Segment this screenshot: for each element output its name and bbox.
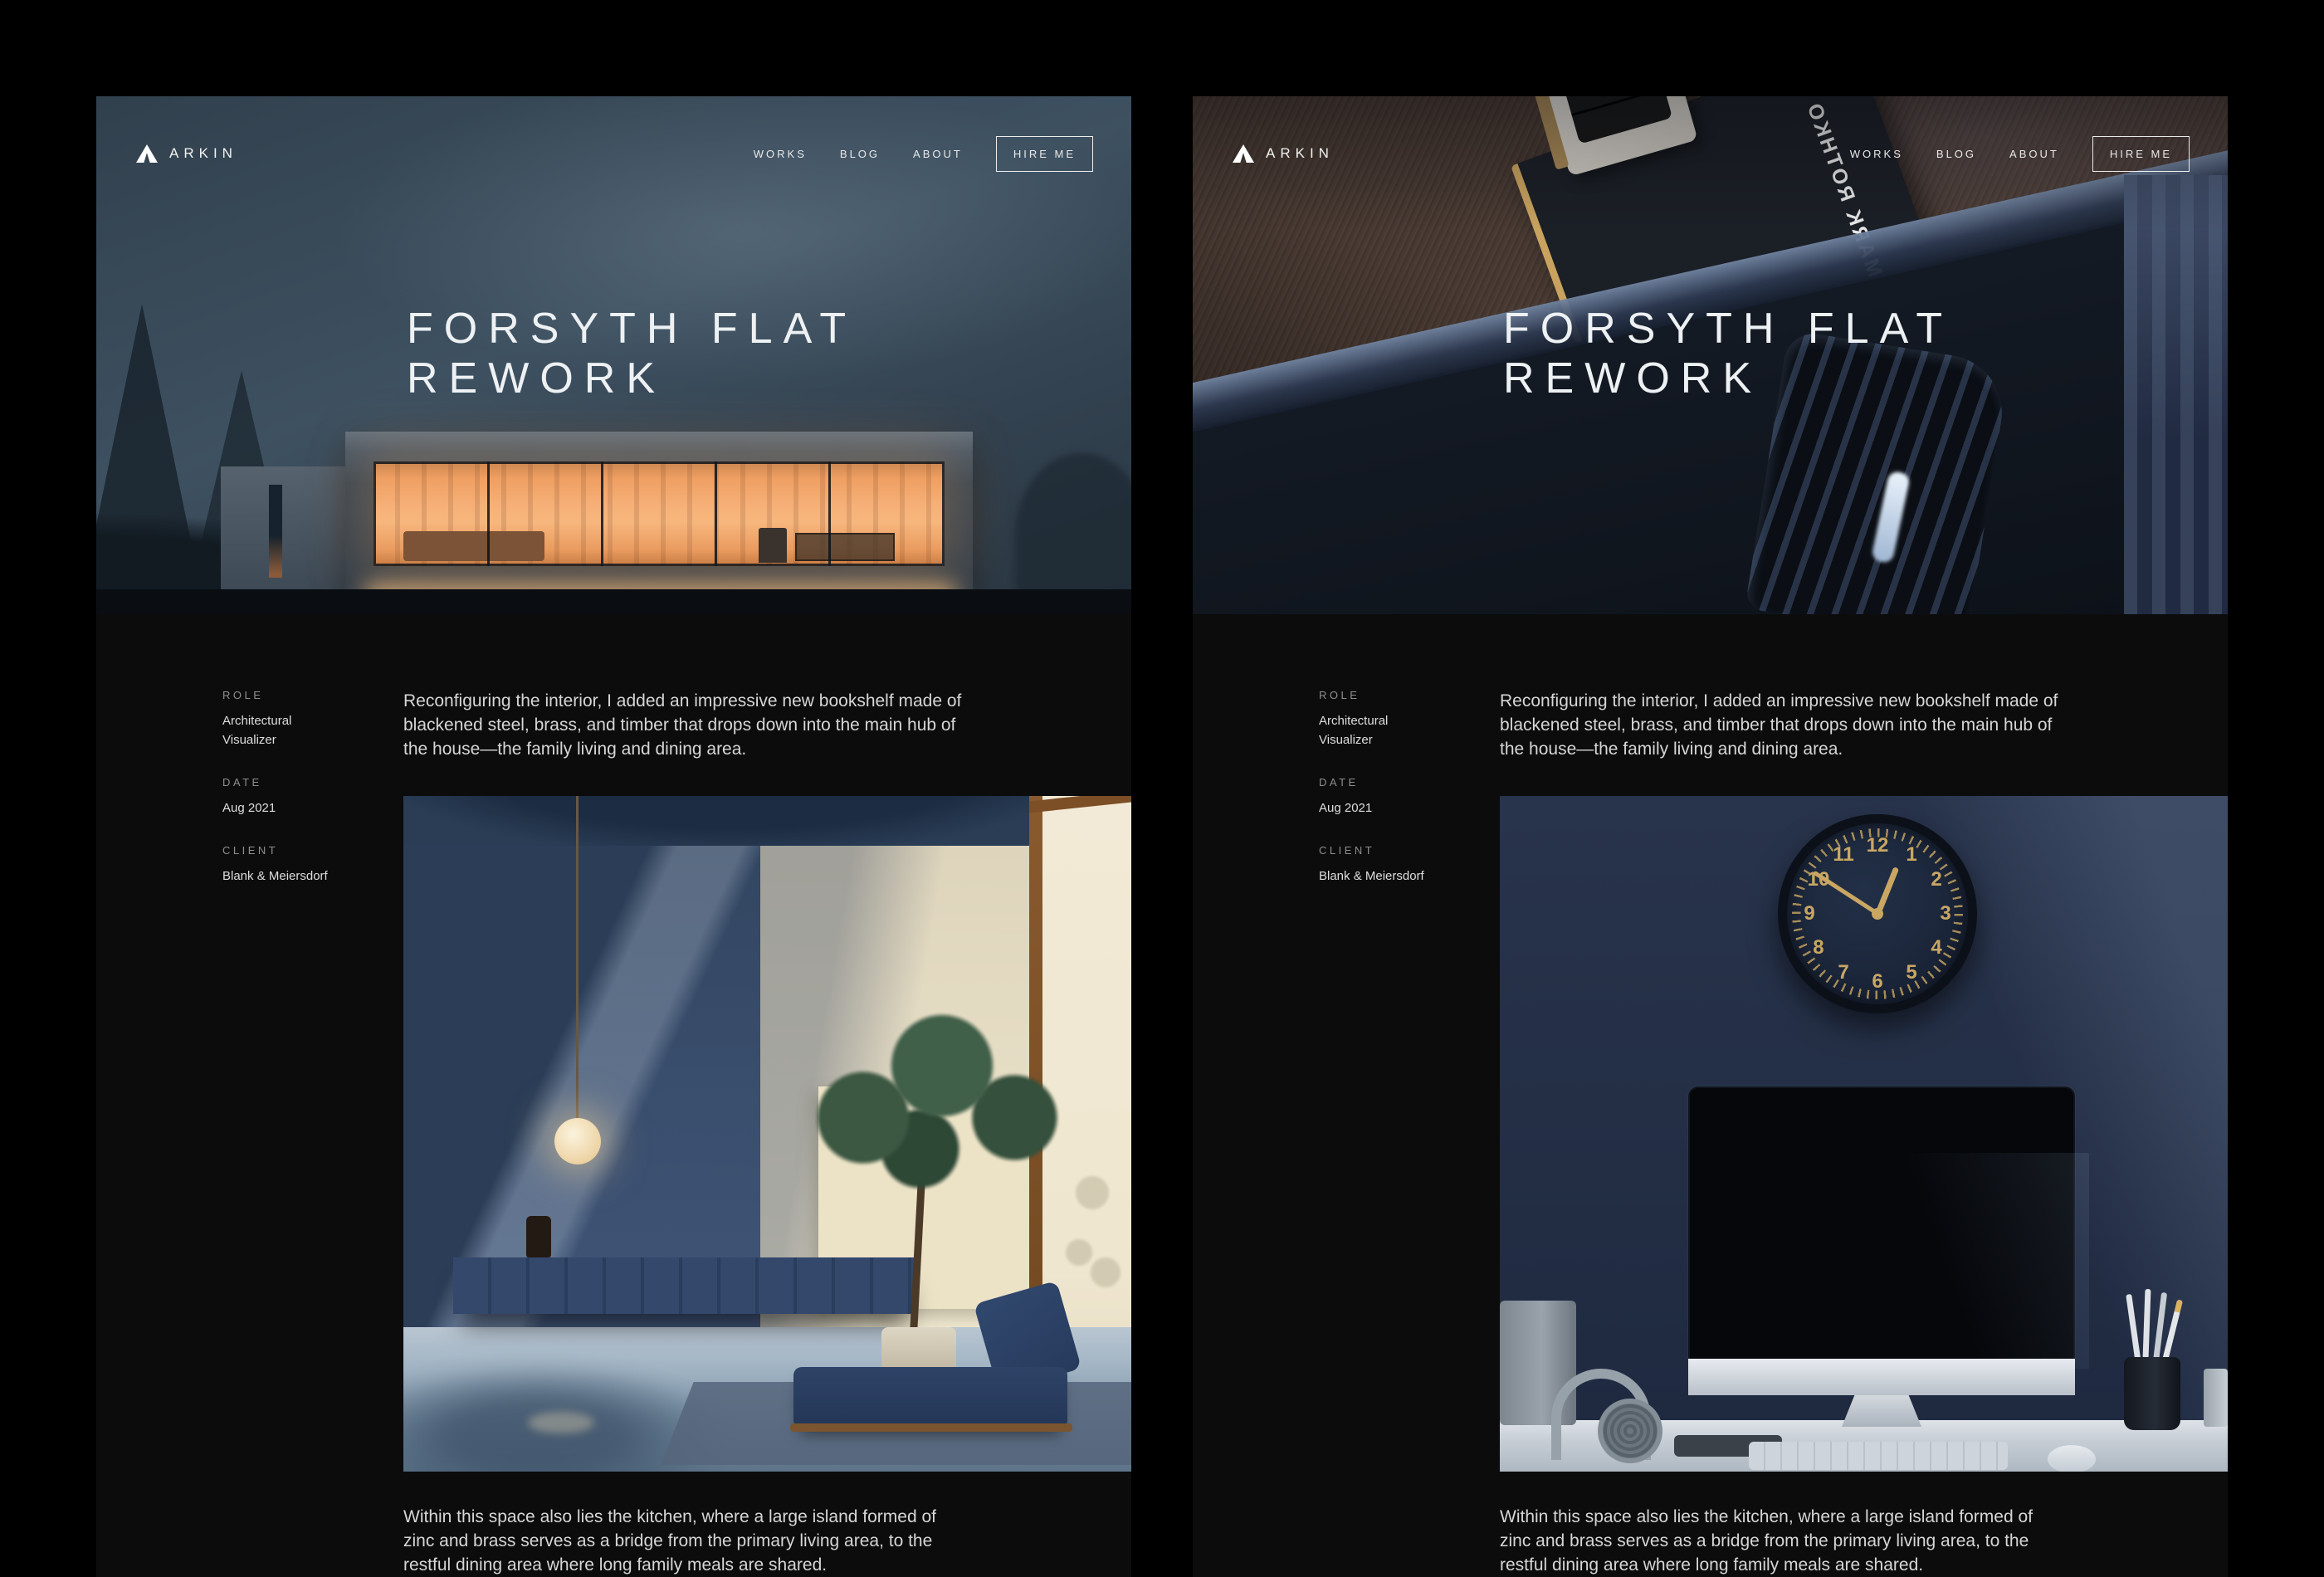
- wall-clock: 121234567891011: [1778, 814, 1977, 1013]
- interior-image-workspace: 121234567891011: [1500, 796, 2228, 1472]
- pen-cup: [2124, 1357, 2180, 1430]
- main-column: Reconfiguring the interior, I added an i…: [403, 689, 1131, 1577]
- meta-value: Architectural Visualizer: [222, 711, 347, 749]
- intro-paragraph: Reconfiguring the interior, I added an i…: [403, 689, 969, 761]
- meta-label: ROLE: [222, 689, 403, 701]
- window-mullions: [373, 461, 945, 566]
- hero-house: FORSYTH FLAT REWORK ARKIN WORKS BLOG ABO…: [96, 96, 1131, 614]
- kitchen-paragraph: Within this space also lies the kitchen,…: [403, 1505, 969, 1577]
- arkin-triangle-icon: [136, 144, 158, 163]
- content-section: ROLE Architectural Visualizer DATE Aug 2…: [96, 614, 1131, 1577]
- nav-about[interactable]: ABOUT: [2009, 148, 2059, 160]
- clock-numeral: 9: [1804, 902, 1814, 925]
- meta-label: DATE: [1319, 776, 1500, 788]
- meta-client: CLIENT Blank & Meiersdorf: [1319, 844, 1500, 886]
- hire-me-button[interactable]: HIRE ME: [2092, 136, 2190, 172]
- meta-value: Aug 2021: [222, 798, 347, 818]
- floating-credenza: [453, 1257, 918, 1314]
- meta-role: ROLE Architectural Visualizer: [1319, 689, 1500, 749]
- meta-label: DATE: [222, 776, 403, 788]
- clock-numeral: 4: [1931, 936, 1941, 959]
- hero-desk: MARK ROTHKO FORSYTH FLAT REWORK: [1193, 96, 2228, 614]
- meta-client: CLIENT Blank & Meiersdorf: [222, 844, 403, 886]
- clock-numeral: 3: [1940, 902, 1950, 925]
- arkin-triangle-icon: [1233, 144, 1254, 163]
- clock-numeral: 11: [1833, 843, 1853, 867]
- pendant-cord: [576, 796, 579, 1121]
- annex-window: [269, 485, 282, 578]
- project-title: FORSYTH FLAT REWORK: [1503, 304, 1953, 403]
- project-title-line1: FORSYTH FLAT: [1503, 304, 1953, 354]
- clock-numeral: 2: [1931, 868, 1941, 891]
- indoor-tree-canopy: [769, 1003, 1084, 1211]
- monitor-chin: [1688, 1359, 2075, 1395]
- clock-numeral: 1: [1906, 843, 1916, 867]
- meta-value: Blank & Meiersdorf: [1319, 867, 1443, 886]
- nav-blog[interactable]: BLOG: [840, 148, 880, 160]
- ground: [96, 589, 1131, 614]
- desk-gadget: [2204, 1369, 2228, 1427]
- case-study-page-right: MARK ROTHKO FORSYTH FLAT REWORK: [1193, 96, 2228, 1577]
- lamp-reflection: [528, 1412, 594, 1433]
- meta-date: DATE Aug 2021: [1319, 776, 1500, 818]
- brand-name: ARKIN: [1266, 145, 1334, 162]
- meta-value: Blank & Meiersdorf: [222, 867, 347, 886]
- brand-name: ARKIN: [169, 145, 237, 162]
- pendant-lamp-globe: [554, 1118, 601, 1164]
- project-meta: ROLE Architectural Visualizer DATE Aug 2…: [1319, 689, 1500, 1577]
- main-nav: WORKS BLOG ABOUT HIRE ME: [1850, 136, 2190, 172]
- kitchen-paragraph: Within this space also lies the kitchen,…: [1500, 1505, 2066, 1577]
- main-nav: WORKS BLOG ABOUT HIRE ME: [754, 136, 1093, 172]
- content-section: ROLE Architectural Visualizer DATE Aug 2…: [1193, 614, 2228, 1577]
- brand-logo[interactable]: ARKIN: [1233, 144, 1334, 163]
- meta-value: Aug 2021: [1319, 798, 1443, 818]
- nav-about[interactable]: ABOUT: [913, 148, 963, 160]
- main-column: Reconfiguring the interior, I added an i…: [1500, 689, 2228, 1577]
- nav-blog[interactable]: BLOG: [1936, 148, 1976, 160]
- keyboard: [1749, 1442, 2008, 1470]
- site-header: ARKIN WORKS BLOG ABOUT HIRE ME: [1233, 126, 2190, 181]
- intro-paragraph: Reconfiguring the interior, I added an i…: [1500, 689, 2066, 761]
- chaise-wood-frame: [790, 1423, 1072, 1432]
- project-title-line1: FORSYTH FLAT: [407, 304, 857, 354]
- nav-works[interactable]: WORKS: [1850, 148, 1903, 160]
- site-header: ARKIN WORKS BLOG ABOUT HIRE ME: [136, 126, 1093, 181]
- hire-me-button[interactable]: HIRE ME: [996, 136, 1093, 172]
- headphones-earcup: [1598, 1399, 1662, 1463]
- mouse: [2048, 1445, 2096, 1472]
- project-title-line2: REWORK: [1503, 354, 1953, 403]
- project-meta: ROLE Architectural Visualizer DATE Aug 2…: [222, 689, 403, 1577]
- brand-logo[interactable]: ARKIN: [136, 144, 237, 163]
- meta-label: CLIENT: [222, 844, 403, 857]
- meta-label: ROLE: [1319, 689, 1500, 701]
- case-study-page-left: FORSYTH FLAT REWORK ARKIN WORKS BLOG ABO…: [96, 96, 1131, 1577]
- clock-numeral: 8: [1813, 936, 1824, 959]
- meta-value: Architectural Visualizer: [1319, 711, 1443, 749]
- meta-date: DATE Aug 2021: [222, 776, 403, 818]
- house-annex: [221, 466, 347, 598]
- clock-center: [1872, 908, 1883, 920]
- monitor-stand: [1842, 1395, 1921, 1427]
- project-title: FORSYTH FLAT REWORK: [407, 304, 857, 403]
- monitor-reflection: [1857, 1153, 2089, 1369]
- clock-numeral: 6: [1872, 970, 1882, 994]
- clock-numeral: 5: [1906, 961, 1916, 984]
- clock-numeral: 12: [1867, 834, 1889, 857]
- nav-works[interactable]: WORKS: [754, 148, 807, 160]
- desktop-background: FORSYTH FLAT REWORK ARKIN WORKS BLOG ABO…: [0, 0, 2324, 1577]
- project-title-line2: REWORK: [407, 354, 857, 403]
- clock-numeral: 7: [1838, 961, 1848, 984]
- lounge-chaise: [793, 1367, 1067, 1428]
- credenza-vase: [526, 1216, 551, 1257]
- meta-role: ROLE Architectural Visualizer: [222, 689, 403, 749]
- interior-image-living-room: [403, 796, 1131, 1472]
- meta-label: CLIENT: [1319, 844, 1500, 857]
